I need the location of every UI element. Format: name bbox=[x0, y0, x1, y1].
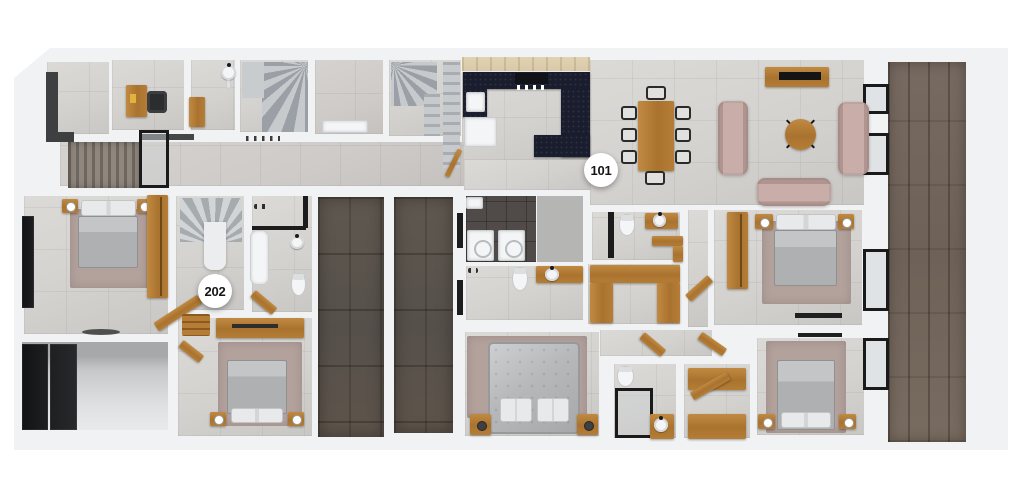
floor-tray bbox=[82, 329, 120, 335]
kitchen-upper-cabinets bbox=[462, 57, 590, 71]
bed bbox=[774, 230, 837, 286]
dining-chair bbox=[675, 128, 691, 142]
credenza bbox=[322, 120, 368, 133]
nightstand bbox=[758, 414, 775, 429]
shower-glass bbox=[608, 212, 614, 258]
nightstand bbox=[210, 412, 226, 426]
pillow bbox=[500, 398, 532, 422]
open-door bbox=[189, 97, 205, 127]
built-in-desk bbox=[652, 236, 683, 246]
patio-strip-1 bbox=[318, 197, 384, 437]
nightstand bbox=[838, 214, 854, 229]
entry-paving bbox=[68, 142, 140, 188]
window-frame bbox=[863, 338, 889, 390]
balcony-deck bbox=[888, 62, 966, 442]
towel-hooks bbox=[254, 204, 270, 209]
hall-a bbox=[688, 210, 708, 327]
pillows bbox=[81, 200, 136, 216]
kitchen-island bbox=[534, 135, 590, 157]
kitchen-sink bbox=[466, 92, 485, 112]
closet-cabinet bbox=[590, 283, 613, 323]
pillows bbox=[781, 412, 831, 428]
dining-chair bbox=[645, 171, 665, 185]
stair-landing bbox=[242, 62, 264, 98]
dresser bbox=[216, 318, 304, 338]
sofa bbox=[718, 101, 748, 175]
fridge bbox=[464, 117, 497, 147]
office-chair bbox=[147, 91, 167, 113]
stair-railing bbox=[246, 136, 280, 141]
entry-glass-door[interactable] bbox=[139, 130, 169, 188]
stair-wood-steps bbox=[182, 314, 210, 336]
washer bbox=[467, 230, 494, 261]
unit-202-label: 202 bbox=[204, 284, 225, 299]
pillows bbox=[231, 408, 283, 423]
toilet bbox=[617, 366, 634, 387]
dining-chair bbox=[621, 150, 637, 164]
dining-chair bbox=[621, 106, 637, 120]
dining-chair bbox=[675, 150, 691, 164]
vanity bbox=[536, 266, 583, 283]
glass-sliding-door[interactable] bbox=[22, 344, 48, 430]
staircase-fan bbox=[262, 62, 308, 132]
pedestal-sink bbox=[221, 65, 236, 80]
tv bbox=[779, 72, 821, 80]
closet-cabinet bbox=[657, 283, 680, 323]
bathtub bbox=[250, 230, 269, 285]
dark-wall-vertical bbox=[46, 72, 58, 138]
laundry-shelf bbox=[466, 197, 483, 209]
tv bbox=[795, 313, 842, 318]
tv bbox=[232, 324, 278, 328]
built-in-desk bbox=[673, 246, 683, 262]
nightstand bbox=[755, 214, 773, 229]
bed bbox=[78, 216, 138, 268]
door-hinges bbox=[468, 268, 478, 273]
stove bbox=[515, 73, 548, 84]
hall-kitchen-pass bbox=[464, 160, 590, 190]
sink bbox=[654, 418, 668, 432]
unit-101-label: 101 bbox=[590, 163, 611, 178]
sink-pedestal bbox=[226, 80, 231, 89]
dark-panel bbox=[22, 216, 34, 308]
desk-accent bbox=[130, 94, 136, 103]
coffee-table bbox=[785, 119, 816, 150]
unit-101-marker[interactable]: 101 bbox=[584, 153, 618, 187]
nightstand bbox=[839, 414, 856, 429]
shower bbox=[615, 388, 653, 438]
closet-shelf bbox=[688, 414, 746, 439]
dining-table bbox=[638, 101, 674, 171]
nightstand bbox=[288, 412, 304, 426]
nightstand bbox=[470, 414, 491, 435]
stair-column bbox=[204, 222, 226, 270]
sink bbox=[290, 236, 304, 249]
closet-cabinet bbox=[590, 265, 680, 283]
unit-202-marker[interactable]: 202 bbox=[198, 274, 232, 308]
sofa bbox=[838, 102, 869, 175]
dark-wall-corner bbox=[46, 132, 74, 142]
dryer bbox=[498, 230, 525, 261]
glass-sliding-door[interactable] bbox=[50, 344, 77, 430]
sliding-door-frame bbox=[457, 280, 463, 315]
shower-glass bbox=[303, 196, 308, 228]
pillows bbox=[776, 214, 836, 230]
nightstand bbox=[62, 199, 78, 213]
sliding-door-frame bbox=[457, 213, 463, 248]
sink bbox=[653, 214, 666, 227]
wardrobe bbox=[147, 195, 168, 298]
stove-knobs bbox=[517, 85, 546, 90]
window-frame bbox=[863, 249, 889, 311]
bed bbox=[227, 360, 287, 414]
tv bbox=[798, 333, 842, 337]
dining-chair bbox=[646, 86, 666, 100]
patio-strip-2 bbox=[394, 197, 453, 433]
floorplan-canvas: 101 202 bbox=[0, 0, 1024, 495]
wardrobe bbox=[727, 212, 748, 289]
nightstand bbox=[577, 414, 598, 435]
toilet bbox=[512, 267, 528, 291]
loveseat bbox=[757, 178, 831, 206]
dining-chair bbox=[675, 106, 691, 120]
toilet bbox=[619, 214, 635, 236]
sink bbox=[545, 268, 559, 281]
dining-chair bbox=[621, 128, 637, 142]
toilet bbox=[291, 273, 306, 296]
stair-run bbox=[424, 94, 440, 136]
laundry-counter-panel bbox=[537, 196, 583, 262]
pillow bbox=[537, 398, 569, 422]
